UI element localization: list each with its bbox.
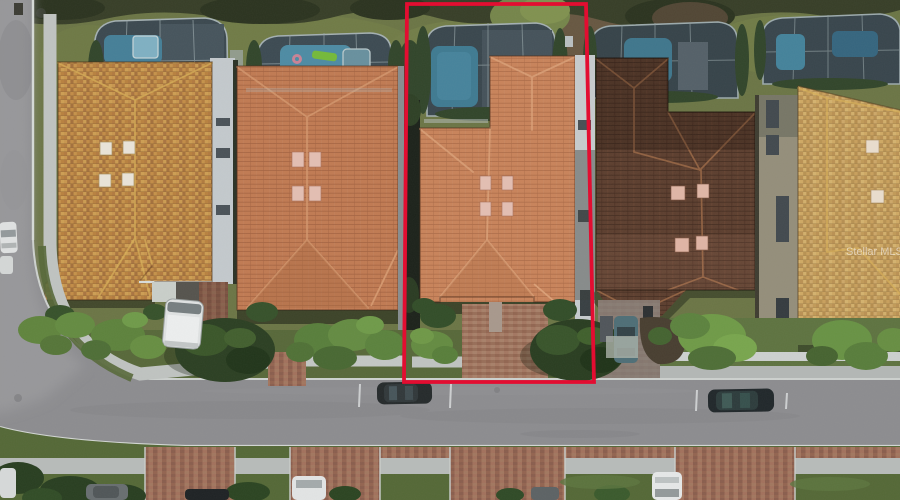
svg-text:Stellar MLS: Stellar MLS [846,246,900,258]
